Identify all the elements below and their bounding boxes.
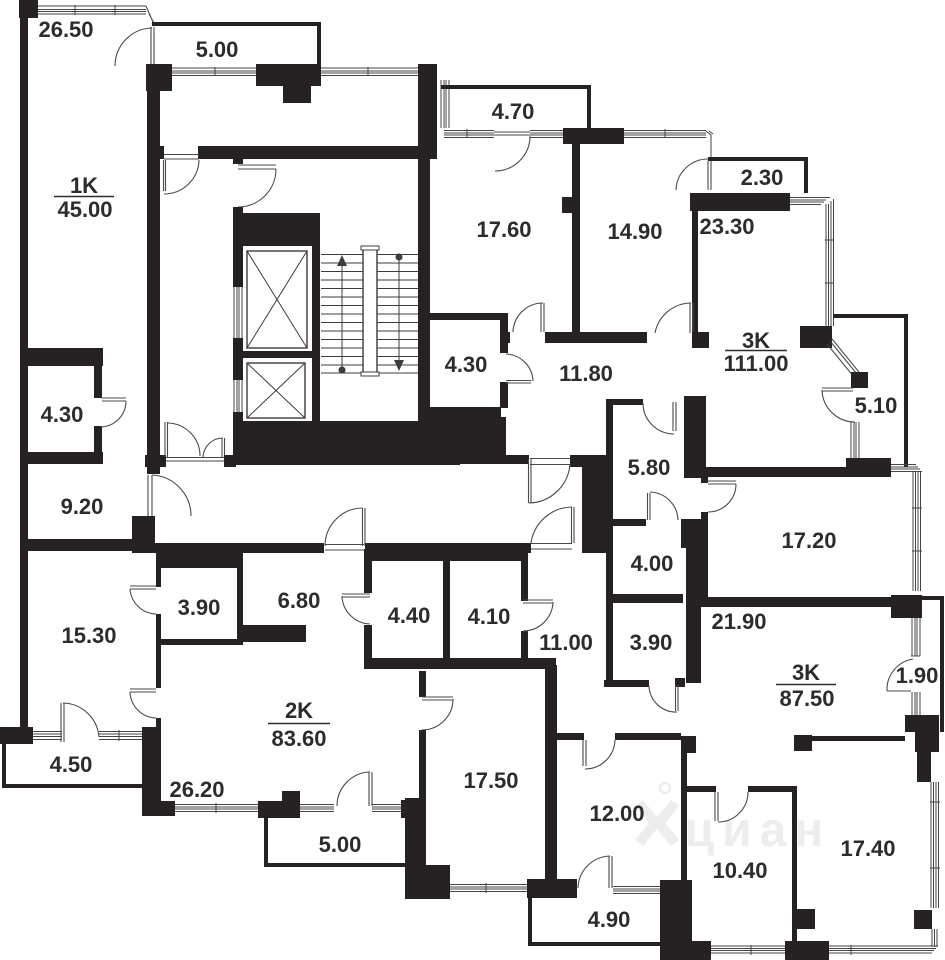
svg-text:11.80: 11.80 (559, 361, 613, 386)
svg-text:17.40: 17.40 (840, 836, 895, 861)
svg-text:4.30: 4.30 (445, 352, 488, 377)
svg-text:11.00: 11.00 (539, 630, 593, 655)
svg-text:21.90: 21.90 (711, 609, 766, 634)
svg-text:5.00: 5.00 (196, 37, 239, 62)
svg-text:15.30: 15.30 (61, 623, 116, 648)
svg-text:4.50: 4.50 (50, 752, 93, 777)
svg-text:4.90: 4.90 (588, 907, 631, 932)
svg-text:4.40: 4.40 (388, 603, 431, 628)
svg-text:5.00: 5.00 (319, 832, 362, 857)
svg-text:111.00: 111.00 (724, 351, 789, 376)
svg-text:2.30: 2.30 (741, 165, 784, 190)
svg-text:4.00: 4.00 (631, 551, 674, 576)
svg-text:14.90: 14.90 (607, 219, 662, 244)
svg-text:26.20: 26.20 (169, 777, 224, 802)
svg-text:17.20: 17.20 (781, 528, 836, 553)
svg-text:26.50: 26.50 (38, 17, 93, 42)
svg-text:3K: 3K (742, 328, 770, 353)
svg-text:4.70: 4.70 (492, 99, 535, 124)
svg-text:17.50: 17.50 (463, 768, 518, 793)
svg-text:5.10: 5.10 (855, 393, 898, 418)
svg-text:9.20: 9.20 (61, 494, 104, 519)
svg-text:4.30: 4.30 (41, 402, 84, 427)
svg-text:83.60: 83.60 (271, 726, 326, 751)
svg-text:17.60: 17.60 (476, 217, 531, 242)
svg-text:циан: циан (685, 804, 832, 857)
svg-text:87.50: 87.50 (779, 686, 834, 711)
svg-text:3.90: 3.90 (630, 630, 673, 655)
svg-text:3K: 3K (792, 660, 820, 685)
svg-text:45.00: 45.00 (57, 197, 112, 222)
svg-text:1K: 1K (70, 173, 98, 198)
svg-text:6.80: 6.80 (278, 588, 321, 613)
svg-text:10.40: 10.40 (712, 858, 767, 883)
svg-text:12.00: 12.00 (589, 801, 644, 826)
svg-text:23.30: 23.30 (699, 214, 754, 239)
svg-text:5.80: 5.80 (628, 455, 671, 480)
svg-text:3.90: 3.90 (178, 595, 221, 620)
svg-text:4.10: 4.10 (468, 604, 511, 629)
svg-text:2K: 2K (285, 698, 313, 723)
svg-text:1.90: 1.90 (896, 663, 939, 688)
